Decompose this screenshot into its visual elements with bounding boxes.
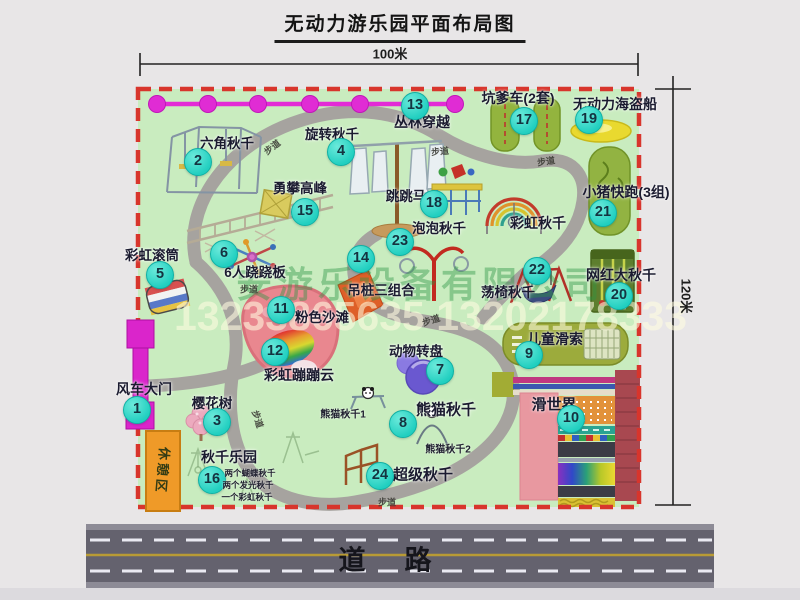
slide-world-badge: 10 [557,405,585,433]
chair-swing-label: 荡椅秋千 [481,281,535,301]
rest-area-box: 休憩区 [145,430,181,512]
jumping-horse-badge: 18 [420,190,448,218]
piggy-run-label: 小猪快跑(3组) [582,182,669,202]
height-dimension-label: 120米 [678,279,697,314]
walkway-label-4: 步道 [240,283,258,296]
hexagon-swing-badge: 2 [184,148,212,176]
rainbow-roller-label: 彩虹滚筒 [125,244,179,264]
super-swing-badge: 24 [366,462,394,490]
road-label: 道 路 [339,539,438,578]
pink-beach-badge: 11 [267,296,295,324]
rainbow-cloud-label: 彩虹蹦蹦云 [264,365,334,385]
rainbow-swing-label: 彩虹秋千 [510,213,566,233]
walkway-label-3: 步道 [536,153,556,168]
panda-swing-badge: 8 [389,410,417,438]
sub-label-4: 两个发光秋千 [222,479,273,491]
rest-area-label: 休憩区 [151,446,174,495]
sub-label-3: 两个蝴蝶秋千 [224,467,275,479]
hanging-piles-badge: 14 [347,245,375,273]
chair-swing-badge: 22 [523,257,551,285]
swing-park-label: 秋千乐园 [201,447,257,467]
playground-layout-poster: 无动力游乐园平面布局图 100米 120米 [0,0,800,600]
kids-zipline-badge: 9 [515,341,543,369]
super-swing-label: 超级秋千 [393,464,453,485]
pirate-ship-badge: 19 [575,106,603,134]
below-road-strip [0,588,800,600]
bubble-swing-badge: 23 [386,228,414,256]
bubble-swing-label: 泡泡秋千 [412,217,466,237]
page-title: 无动力游乐园平面布局图 [274,9,525,43]
rotating-swing-badge: 4 [327,138,355,166]
windmill-gate-label: 风车大门 [116,379,172,399]
jungle-crossing-badge: 13 [401,92,429,120]
walkway-label-6: 步道 [378,496,396,509]
hexagon-swing-label: 六角秋千 [200,132,254,152]
climbing-peak-label: 勇攀高峰 [273,177,327,197]
rainbow-roller-badge: 5 [146,261,174,289]
climbing-peak-badge: 15 [291,198,319,226]
windmill-gate-badge: 1 [123,396,151,424]
rainbow-cloud-badge: 12 [261,338,289,366]
pedal-car-label: 坑爹车(2套) [481,88,554,108]
width-dimension-label: 100米 [373,44,408,63]
sub-label-1: 熊猫秋千1 [320,406,366,421]
seesaw-6p-badge: 6 [210,240,238,268]
sub-label-2: 熊猫秋千2 [425,441,471,456]
pedal-car-badge: 17 [510,107,538,135]
cherry-tree-badge: 3 [203,408,231,436]
walkway-label-2: 步道 [430,144,449,159]
sub-label-5: 一个彩虹秋千 [221,491,272,503]
piggy-run-badge: 21 [589,199,617,227]
animal-carousel-badge: 7 [426,357,454,385]
hanging-piles-label: 吊桩三组合 [347,279,415,299]
pink-beach-label: 粉色沙滩 [295,306,349,326]
panda-swing-label: 熊猫秋千 [416,399,476,420]
big-swing-badge: 20 [605,282,633,310]
